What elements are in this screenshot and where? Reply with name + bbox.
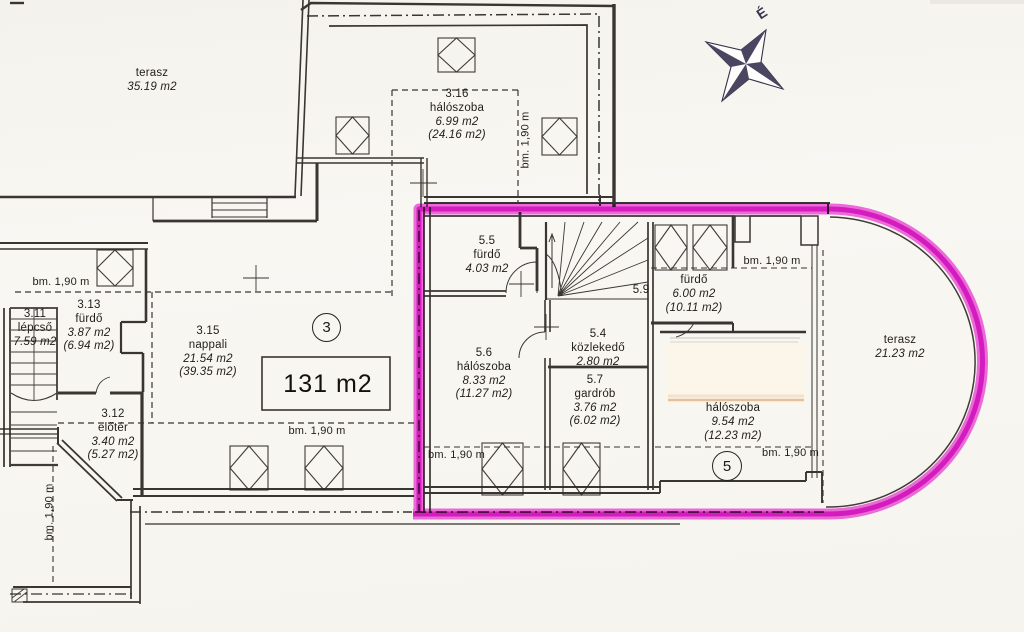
roof-window-icon xyxy=(305,446,343,490)
height-label: bm. 1,90 m xyxy=(519,111,532,168)
roof-window-icon xyxy=(542,118,577,155)
height-label: bm. 1,90 m xyxy=(743,255,800,268)
room-label-3-12: 3.12előtér 3.40 m2(5.27 m2) xyxy=(87,408,138,463)
height-label: bm. 1,90 m xyxy=(762,447,819,460)
height-label: bm. 1,90 m xyxy=(428,449,485,462)
unit-badge-5: 5 xyxy=(712,451,742,481)
height-label: bm. 1,90 m xyxy=(43,483,56,540)
roof-window-icon xyxy=(693,225,727,270)
roof-window-icon xyxy=(97,250,133,286)
room-label-3-16: 3.16hálószoba 6.99 m2(24.16 m2) xyxy=(428,88,486,143)
scan-shade xyxy=(930,0,1024,4)
total-area-label: 131 m2 xyxy=(270,370,386,399)
room-label-3-11: 3.11lépcső 7.59 m2 xyxy=(14,308,57,349)
stairs-311 xyxy=(4,308,58,602)
room-label-5-4: 5.4közlekedő 2.80 m2 xyxy=(571,328,625,369)
unit-badge-3: 3 xyxy=(312,313,341,342)
height-label: bm. 1,90 m xyxy=(288,425,345,438)
room-label-5-9: fürdő 6.00 m2(10.11 m2) xyxy=(666,274,723,315)
floorplan-linework xyxy=(0,0,1024,632)
room-label-5-5: 5.5fürdő 4.03 m2 xyxy=(466,235,509,276)
roof-window-icon xyxy=(336,117,369,154)
room-label-5-6: 5.6hálószoba 8.33 m2(11.27 m2) xyxy=(456,347,513,402)
roof-window-icon xyxy=(230,446,268,490)
compass-icon xyxy=(706,30,783,101)
room-label-3-13: 3.13fürdő 3.87 m2(6.94 m2) xyxy=(63,299,114,354)
terrace-arc-wall xyxy=(826,217,975,507)
room-label-terasz-nw: terasz35.19 m2 xyxy=(127,67,177,95)
room-id-5-9: 5.9 xyxy=(633,284,650,298)
roof-window-icon xyxy=(655,225,687,270)
room-label-terasz-e: terasz21.23 m2 xyxy=(875,334,925,362)
floorplan-page: terasz35.19 m2 3.16hálószoba 6.99 m2(24.… xyxy=(0,0,1024,632)
whiteout-patch xyxy=(666,338,806,403)
room-label-5-7: 5.7gardrób 3.76 m2(6.02 m2) xyxy=(569,374,620,429)
room-label-3-15: 3.15nappali 21.54 m2(39.35 m2) xyxy=(179,325,237,380)
roof-window-icon xyxy=(438,38,475,72)
height-label: bm. 1,90 m xyxy=(32,276,89,289)
room-label-bedroom-se: hálószoba 9.54 m2(12.23 m2) xyxy=(704,402,762,443)
